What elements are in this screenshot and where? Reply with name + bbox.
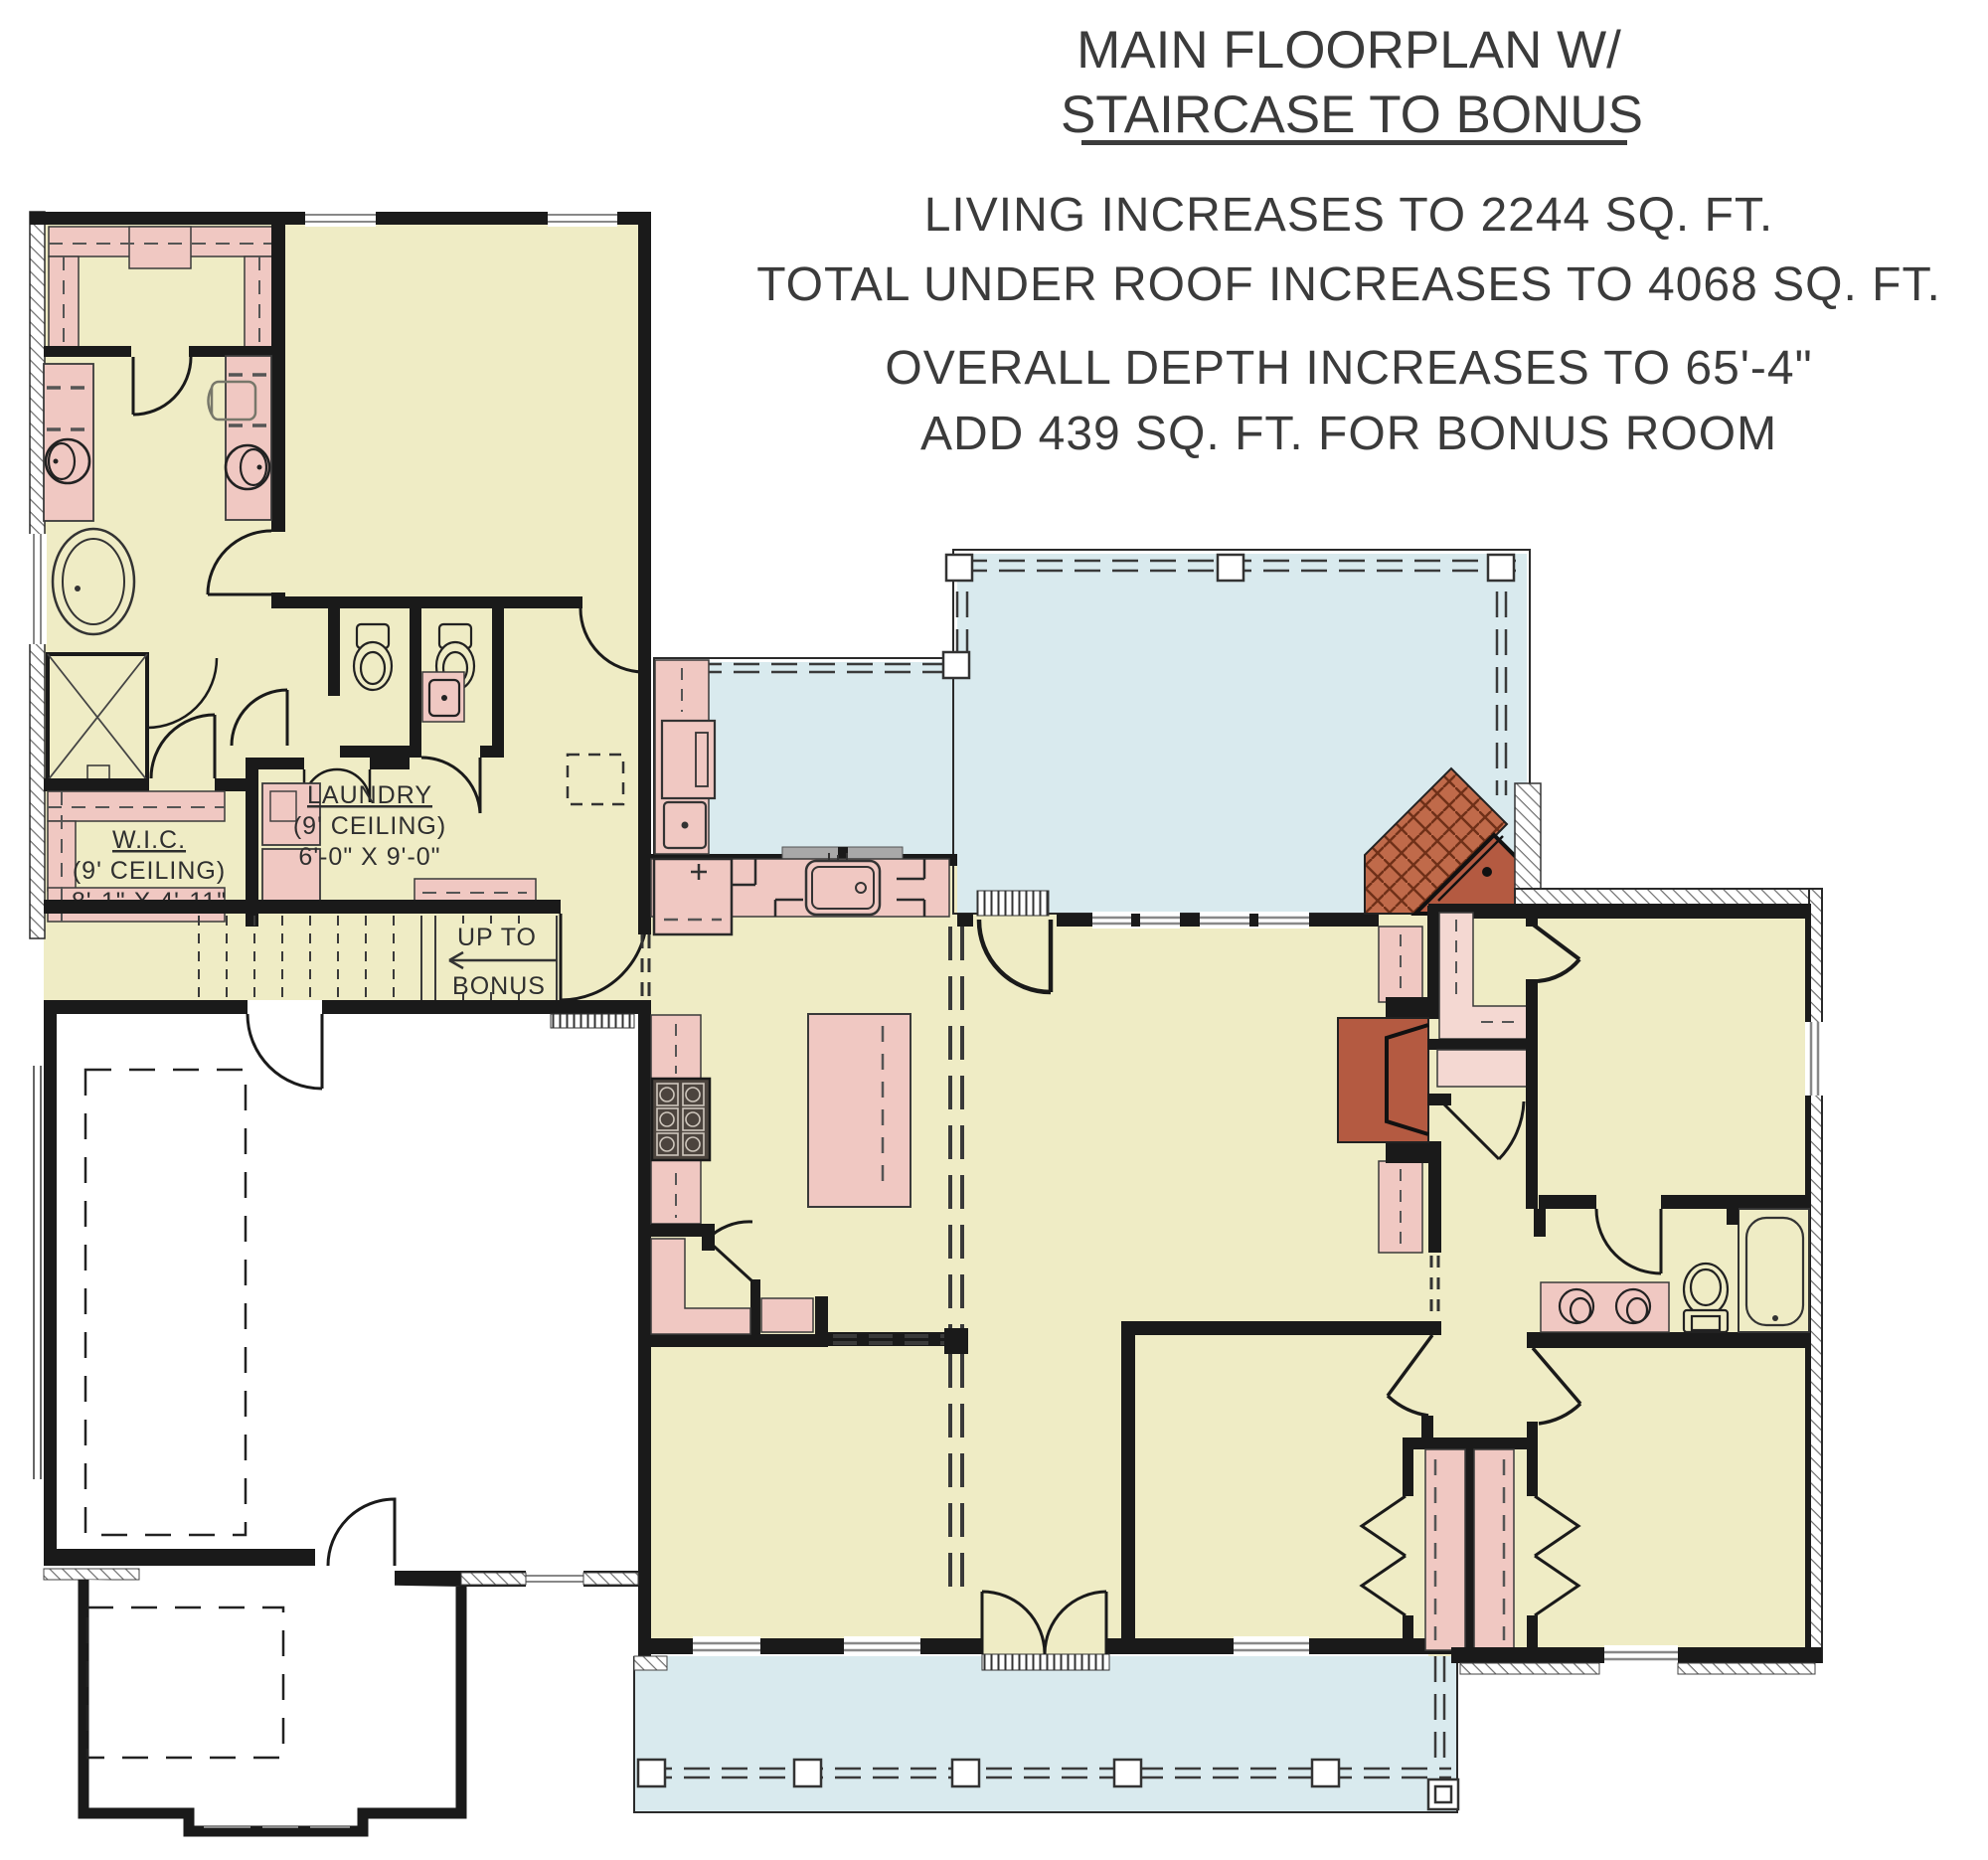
svg-text:BONUS: BONUS	[452, 972, 546, 1000]
svg-text:6'-0" X 9'-0": 6'-0" X 9'-0"	[298, 843, 440, 871]
svg-text:W.I.C.: W.I.C.	[112, 826, 186, 854]
svg-text:(9' CEILING): (9' CEILING)	[293, 812, 446, 840]
svg-text:TOTAL UNDER ROOF INCREASES TO: TOTAL UNDER ROOF INCREASES TO 4068 SQ. F…	[756, 258, 1941, 311]
svg-text:MAIN FLOORPLAN W/: MAIN FLOORPLAN W/	[1077, 21, 1621, 80]
svg-text:(9' CEILING): (9' CEILING)	[73, 857, 226, 885]
svg-text:LIVING INCREASES TO 2244 SQ. F: LIVING INCREASES TO 2244 SQ. FT.	[924, 189, 1774, 242]
svg-text:ADD 439 SQ. FT. FOR BONUS ROOM: ADD 439 SQ. FT. FOR BONUS ROOM	[920, 408, 1777, 460]
svg-text:OVERALL DEPTH INCREASES TO 65': OVERALL DEPTH INCREASES TO 65'-4"	[885, 342, 1812, 395]
svg-text:STAIRCASE TO BONUS: STAIRCASE TO BONUS	[1061, 85, 1643, 144]
svg-text:LAUNDRY: LAUNDRY	[307, 781, 432, 809]
svg-text:UP TO: UP TO	[457, 924, 537, 951]
